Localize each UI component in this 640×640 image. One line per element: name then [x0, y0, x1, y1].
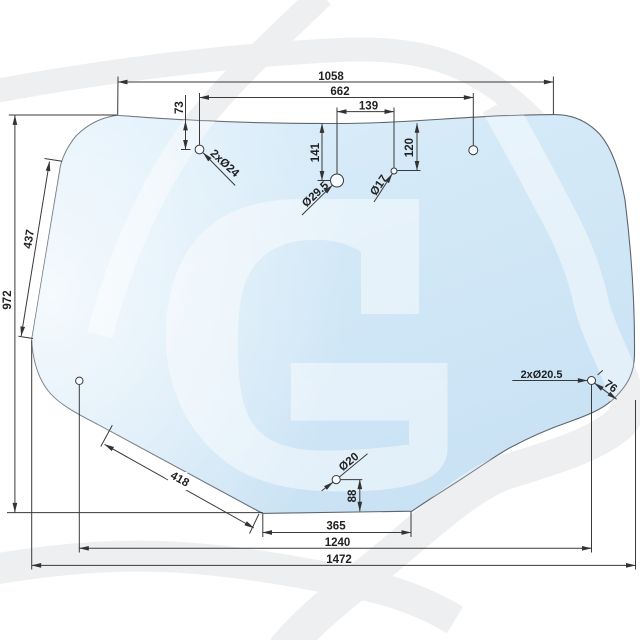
svg-text:73: 73 [174, 101, 186, 114]
svg-text:1058: 1058 [318, 71, 344, 83]
svg-text:141: 141 [310, 142, 322, 162]
svg-text:1472: 1472 [326, 554, 352, 566]
svg-text:88: 88 [347, 489, 359, 502]
svg-text:662: 662 [330, 86, 349, 98]
svg-text:139: 139 [359, 100, 378, 112]
svg-text:365: 365 [326, 521, 346, 533]
svg-text:120: 120 [404, 138, 416, 157]
svg-text:1240: 1240 [325, 537, 351, 549]
svg-text:972: 972 [2, 290, 14, 309]
svg-text:2xØ20.5: 2xØ20.5 [521, 369, 563, 381]
